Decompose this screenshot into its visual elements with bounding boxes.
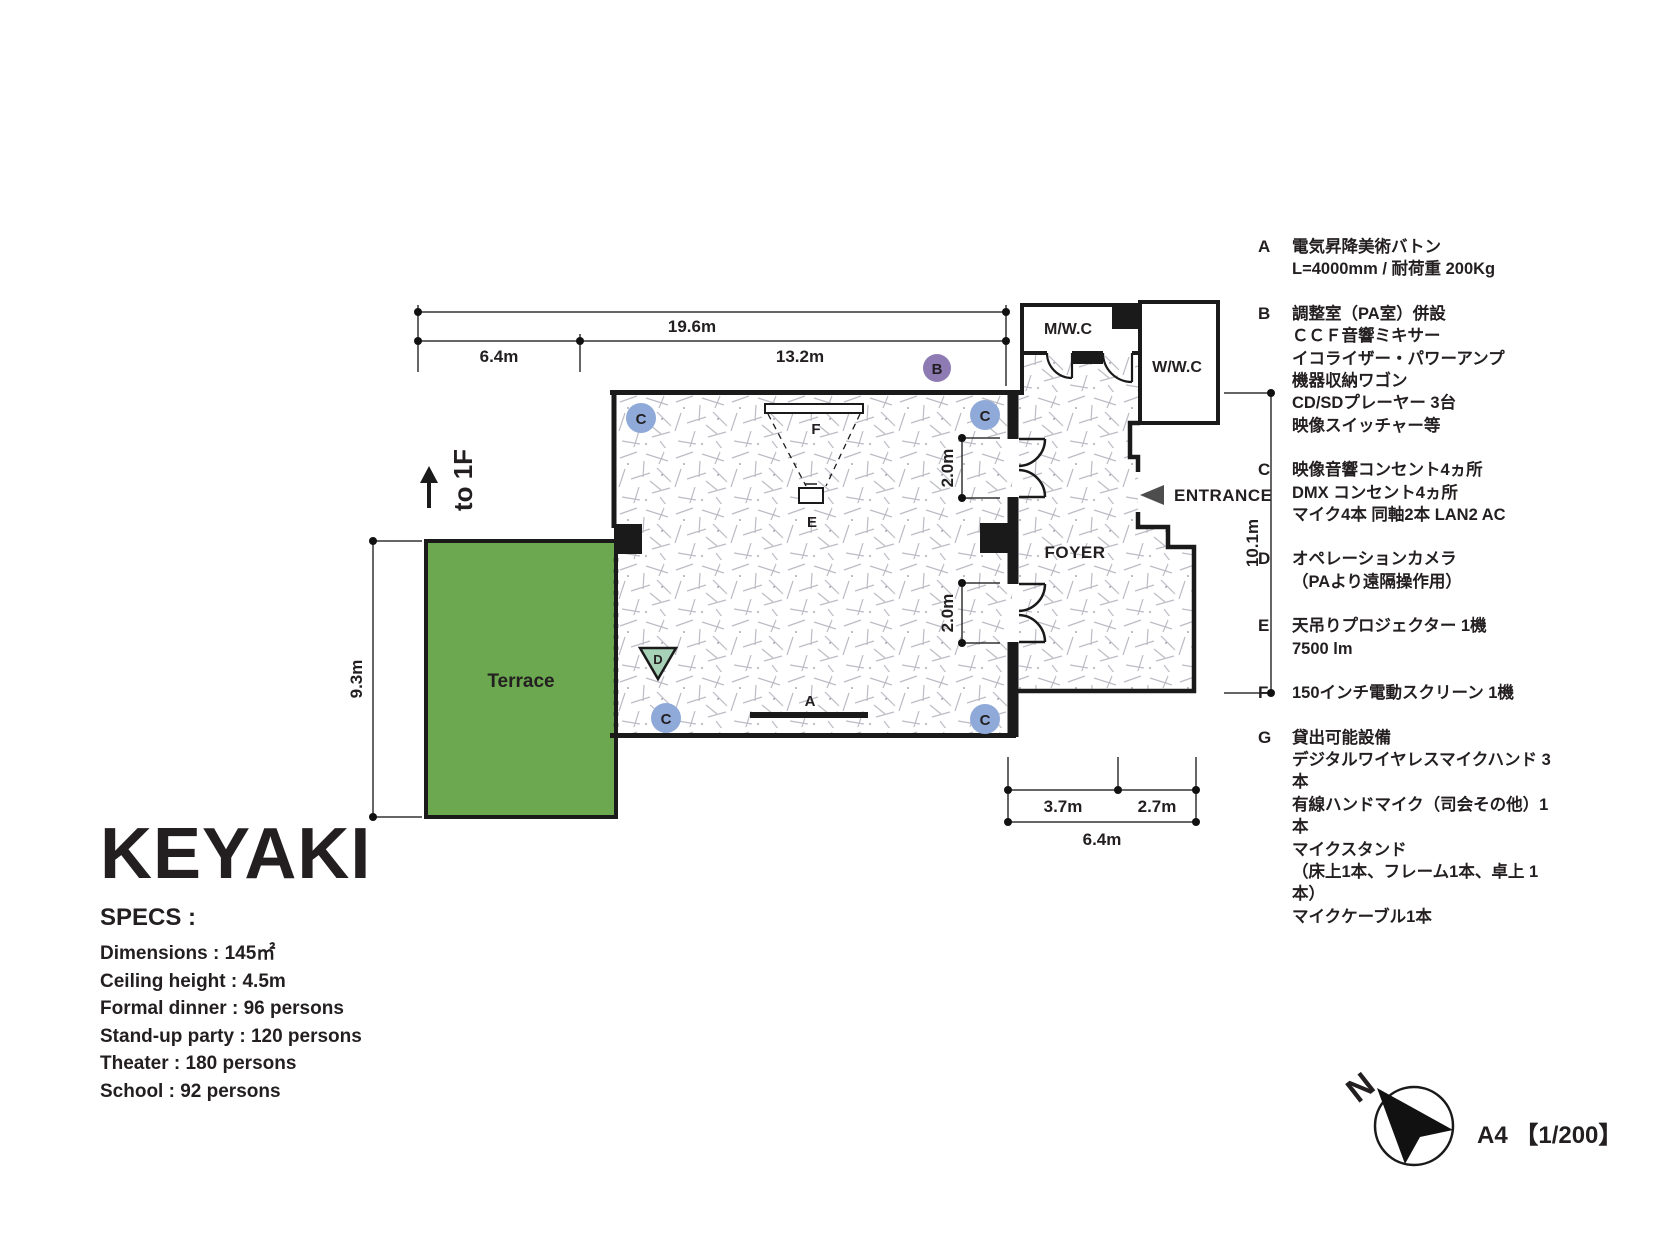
legend-item-b: B 調整室（PA室）併設 ＣＣＦ音響ミキサー イコライザー・パワーアンプ 機器収… bbox=[1258, 303, 1558, 437]
wc-door-pier bbox=[1072, 351, 1103, 364]
spec-standup-party: Stand-up party : 120 persons bbox=[100, 1023, 371, 1051]
dim-6-4-bottom: 6.4m bbox=[1083, 830, 1122, 849]
to-1f-label: to 1F bbox=[448, 449, 478, 511]
hall-floor bbox=[614, 392, 1012, 736]
svg-text:C: C bbox=[980, 712, 991, 729]
dim-3-7: 3.7m bbox=[1044, 797, 1083, 816]
dim-9-3: 9.3m bbox=[347, 660, 366, 699]
baton-a-label: A bbox=[805, 693, 816, 710]
marker-c-bottom-left: C bbox=[651, 703, 681, 733]
terrace-label: Terrace bbox=[487, 671, 554, 692]
marker-b: B bbox=[923, 354, 951, 382]
foyer-label: FOYER bbox=[1044, 543, 1105, 562]
wwc-label: W/W.C bbox=[1152, 359, 1202, 376]
terrace-area: Terrace bbox=[426, 541, 616, 817]
legend-item-e: E 天吊りプロジェクター 1機 7500 lm bbox=[1258, 615, 1558, 660]
spec-ceiling-height: Ceiling height : 4.5m bbox=[100, 968, 371, 996]
svg-text:D: D bbox=[653, 652, 662, 667]
equipment-legend: A 電気昇降美術バトン L=4000mm / 耐荷重 200Kg B 調整室（P… bbox=[1258, 236, 1558, 950]
legend-item-d: D オペレーションカメラ （PAより遠隔操作用） bbox=[1258, 548, 1558, 593]
floorplan-sheet: { "title": "KEYAKI", "specs": { "heading… bbox=[0, 0, 1655, 1241]
legend-item-a: A 電気昇降美術バトン L=4000mm / 耐荷重 200Kg bbox=[1258, 236, 1558, 281]
specs-heading: SPECS : bbox=[100, 904, 371, 932]
svg-text:C: C bbox=[661, 711, 672, 728]
dim-19-6: 19.6m bbox=[668, 317, 716, 336]
north-arrow: N bbox=[1339, 1065, 1453, 1165]
dim-2-7: 2.7m bbox=[1138, 797, 1177, 816]
screen-f-label: F bbox=[811, 421, 820, 438]
legend-item-g: G 貸出可能設備 デジタルワイヤレスマイクハンド 3本 有線ハンドマイク（司会そ… bbox=[1258, 727, 1558, 929]
entrance: ENTRANCE bbox=[1140, 485, 1272, 505]
pillar-right bbox=[980, 523, 1008, 553]
entrance-arrow-icon bbox=[1140, 485, 1164, 505]
dim-13-2: 13.2m bbox=[776, 347, 824, 366]
dim-6-4-top: 6.4m bbox=[480, 347, 519, 366]
sheet-scale: A4 【1/200】 bbox=[1477, 1122, 1622, 1149]
mwc-label: M/W.C bbox=[1044, 321, 1092, 338]
spec-school: School : 92 persons bbox=[100, 1078, 371, 1106]
projector-e-label: E bbox=[807, 514, 817, 531]
legend-item-f: F 150インチ電動スクリーン 1機 bbox=[1258, 682, 1558, 704]
marker-c-top-left: C bbox=[626, 403, 656, 433]
north-label: N bbox=[1339, 1065, 1382, 1110]
dim-door-bottom: 2.0m bbox=[938, 594, 957, 633]
spec-formal-dinner: Formal dinner : 96 persons bbox=[100, 995, 371, 1023]
svg-text:C: C bbox=[980, 408, 991, 425]
dim-door-top: 2.0m bbox=[938, 449, 957, 488]
marker-c-bottom-right: C bbox=[970, 704, 1000, 734]
spec-theater: Theater : 180 persons bbox=[100, 1050, 371, 1078]
title-block: KEYAKI SPECS : Dimensions : 145㎡ Ceiling… bbox=[100, 818, 371, 1105]
wc-wall-block bbox=[1112, 303, 1142, 329]
marker-c-top-right: C bbox=[970, 400, 1000, 430]
to-1f: to 1F bbox=[420, 449, 478, 511]
spec-dimensions: Dimensions : 145㎡ bbox=[100, 940, 371, 968]
svg-text:B: B bbox=[932, 361, 943, 378]
venue-title: KEYAKI bbox=[100, 818, 371, 890]
legend-item-c: C 映像音響コンセント4ヵ所 DMX コンセント4ヵ所 マイク4本 同軸2本 L… bbox=[1258, 459, 1558, 526]
pillar-left bbox=[614, 524, 642, 554]
svg-text:C: C bbox=[636, 411, 647, 428]
